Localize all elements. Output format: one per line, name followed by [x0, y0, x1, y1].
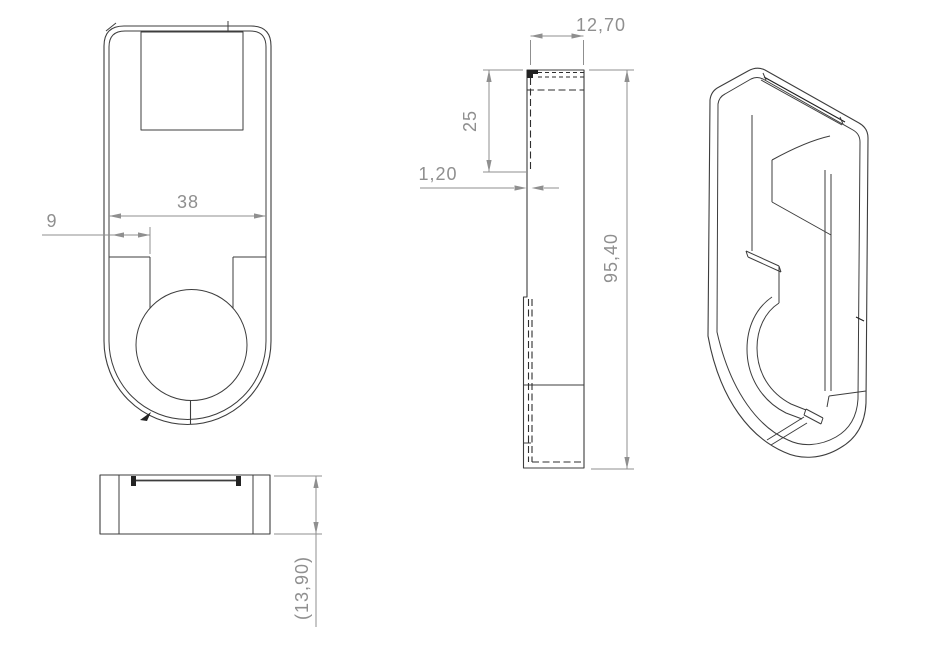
- dim-label-side-window-depth: 25: [461, 110, 479, 132]
- front-cradle-circle: [136, 290, 247, 401]
- cad-drawing-canvas: 38 9 (13,90) 12,70 25 1,20 95,40: [0, 0, 940, 665]
- side-hidden-top-band: [538, 73, 584, 78]
- iso-back-wall-right-corner: [825, 170, 831, 391]
- dim-label-side-height: 95,40: [602, 233, 620, 283]
- front-dimension-graphics: [42, 213, 266, 254]
- front-inner-outline: [109, 31, 266, 420]
- dim-line-side-depth: [531, 36, 584, 65]
- dim-label-front-offset: 9: [46, 212, 57, 230]
- side-view: [524, 70, 585, 468]
- dim-label-front-width: 38: [177, 193, 199, 211]
- isometric-view: [708, 68, 868, 457]
- iso-cradle-arc-outer: [757, 303, 806, 410]
- dim-line-front-offset: [42, 227, 150, 254]
- front-outer-outline: [104, 26, 271, 425]
- front-slot-shoulders: [109, 257, 266, 308]
- bottom-outline: [100, 475, 270, 534]
- iso-cradle-tab: [746, 251, 781, 303]
- iso-opening-rim: [717, 78, 860, 445]
- iso-top-slot: [764, 77, 845, 122]
- dim-label-side-wall: 1,20: [418, 165, 457, 183]
- front-window-cutout: [141, 32, 243, 130]
- drawing-linework: [0, 0, 940, 665]
- front-view: [104, 21, 271, 425]
- iso-right-face-bottom-edge: [827, 391, 866, 407]
- bottom-tab-right: [236, 476, 241, 486]
- iso-cradle-arc-inner: [747, 297, 802, 419]
- dim-line-side-window-depth: [483, 70, 528, 172]
- iso-right-edge-notch: [856, 317, 864, 321]
- side-top-tab-section: [527, 70, 538, 78]
- iso-window-cutout: [772, 136, 831, 235]
- iso-top-slot-inner: [761, 80, 842, 125]
- bottom-tab-left: [131, 476, 136, 486]
- side-hidden-cradle: [529, 299, 584, 462]
- side-outline: [524, 70, 585, 468]
- dim-label-side-depth: 12,70: [576, 16, 626, 34]
- iso-bottom-slot: [767, 409, 823, 445]
- dim-label-bottom-depth: (13,90): [293, 556, 311, 620]
- bottom-view: [100, 475, 270, 534]
- bottom-inner-walls: [119, 475, 253, 534]
- iso-outer-silhouette: [708, 68, 868, 457]
